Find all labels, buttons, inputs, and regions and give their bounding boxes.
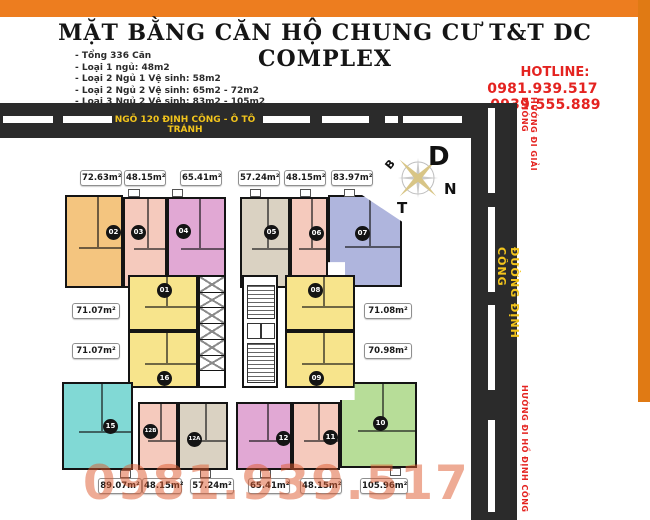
road-ngo-120-dinh-cong: NGÕ 120 ĐỊNH CÔNG - Ô TÔ TRÁNH <box>0 103 517 138</box>
unit-09: 09 <box>285 331 355 388</box>
area-label: 65.41m² <box>180 170 222 186</box>
balcony-tick <box>172 189 183 197</box>
hotline-label: HOTLINE: <box>495 65 615 80</box>
direction-giai-phong-label: HƯỚNG ĐI GIẢI PHÓNG <box>520 97 538 207</box>
elevator-icon <box>200 277 224 293</box>
lane-marking <box>322 116 369 123</box>
lane-marking <box>385 116 398 123</box>
area-label: 57.24m² <box>238 170 280 186</box>
road-right-label: ĐƯỜNG ĐỊNH CÔNG <box>495 247 521 377</box>
unit-02: 02 <box>65 195 123 288</box>
area-label: 71.07m² <box>72 303 120 319</box>
legend-line-2br2wc: - Loại 2 Ngủ 2 Vệ sinh: 65m2 - 72m2 <box>75 86 265 98</box>
unit-number-badge: 06 <box>309 226 324 241</box>
unit-number-badge: 09 <box>309 371 324 386</box>
unit-16: 16 <box>128 331 198 388</box>
lane-marking <box>488 108 495 193</box>
balcony-tick <box>250 189 261 197</box>
unit-number-badge: 08 <box>308 283 323 298</box>
lane-marking <box>488 305 495 390</box>
compass-east-label: D <box>428 142 450 172</box>
road-duong-dinh-cong: ĐƯỜNG ĐỊNH CÔNG <box>471 103 517 520</box>
elevator-core <box>198 275 226 388</box>
area-label: 71.07m² <box>72 343 120 359</box>
legend-info: - Tổng 336 Căn - Loại 1 ngủ: 48m2 - Loại… <box>75 51 265 109</box>
unit-08: 08 <box>285 275 355 331</box>
unit-number-badge: 02 <box>106 225 121 240</box>
area-label: 48.15m² <box>124 170 166 186</box>
unit-number-badge: 12 <box>276 431 291 446</box>
unit-number-badge: 10 <box>373 416 388 431</box>
unit-number-badge: 03 <box>131 225 146 240</box>
lane-marking <box>3 116 53 123</box>
unit-number-badge: 12B <box>143 424 158 439</box>
unit-number-badge: 12A <box>187 432 202 447</box>
unit-number-badge: 11 <box>323 430 338 445</box>
road-top-label: NGÕ 120 ĐỊNH CÔNG - Ô TÔ TRÁNH <box>100 115 270 135</box>
unit-number-badge: 07 <box>355 226 370 241</box>
lane-marking <box>403 116 462 123</box>
area-label: 83.97m² <box>331 170 373 186</box>
balcony-tick <box>344 189 355 197</box>
lane-marking <box>263 116 310 123</box>
balcony-tick <box>300 189 311 197</box>
unit-number-badge: 01 <box>157 283 172 298</box>
elevator-icon <box>200 293 224 309</box>
legend-line-total: - Tổng 336 Căn <box>75 51 265 63</box>
service-room <box>247 323 261 339</box>
service-room <box>261 323 275 339</box>
lane-marking <box>488 420 495 512</box>
top-orange-bar <box>0 0 650 17</box>
area-label: 70.98m² <box>364 343 412 359</box>
unit-number-badge: 04 <box>176 224 191 239</box>
elevator-icon <box>200 324 224 340</box>
elevator-icon <box>200 356 224 372</box>
balcony-tick <box>128 189 140 197</box>
unit-07: 07 <box>328 195 402 287</box>
legend-line-2br1wc: - Loại 2 Ngủ 1 Vệ sinh: 58m2 <box>75 74 265 86</box>
elevator-lobby <box>200 371 224 386</box>
unit-number-badge: 16 <box>157 371 172 386</box>
area-label: 72.63m² <box>80 170 122 186</box>
unit-number-badge: 15 <box>103 419 118 434</box>
legend-line-1br: - Loại 1 ngủ: 48m2 <box>75 63 265 75</box>
area-label: 71.08m² <box>364 303 412 319</box>
watermark-phone: 0981.939.517 <box>83 456 470 511</box>
unit-number-badge: 05 <box>264 225 279 240</box>
compass-west-label: T <box>397 199 407 217</box>
direction-ho-dinh-cong-label: HƯỚNG ĐI HỒ ĐỊNH CÔNG <box>520 385 529 520</box>
stairs-icon <box>247 343 275 383</box>
stair-core <box>242 275 278 388</box>
compass-south-label: N <box>444 180 457 198</box>
elevator-icon <box>200 308 224 324</box>
area-label: 48.15m² <box>284 170 326 186</box>
stairs-icon <box>247 285 275 319</box>
lane-marking <box>488 207 495 292</box>
floor-plan-page: MẶT BẰNG CĂN HỘ CHUNG CƯ T&T DC COMPLEX … <box>0 0 650 520</box>
elevator-icon <box>200 340 224 356</box>
unit-01: 01 <box>128 275 198 331</box>
